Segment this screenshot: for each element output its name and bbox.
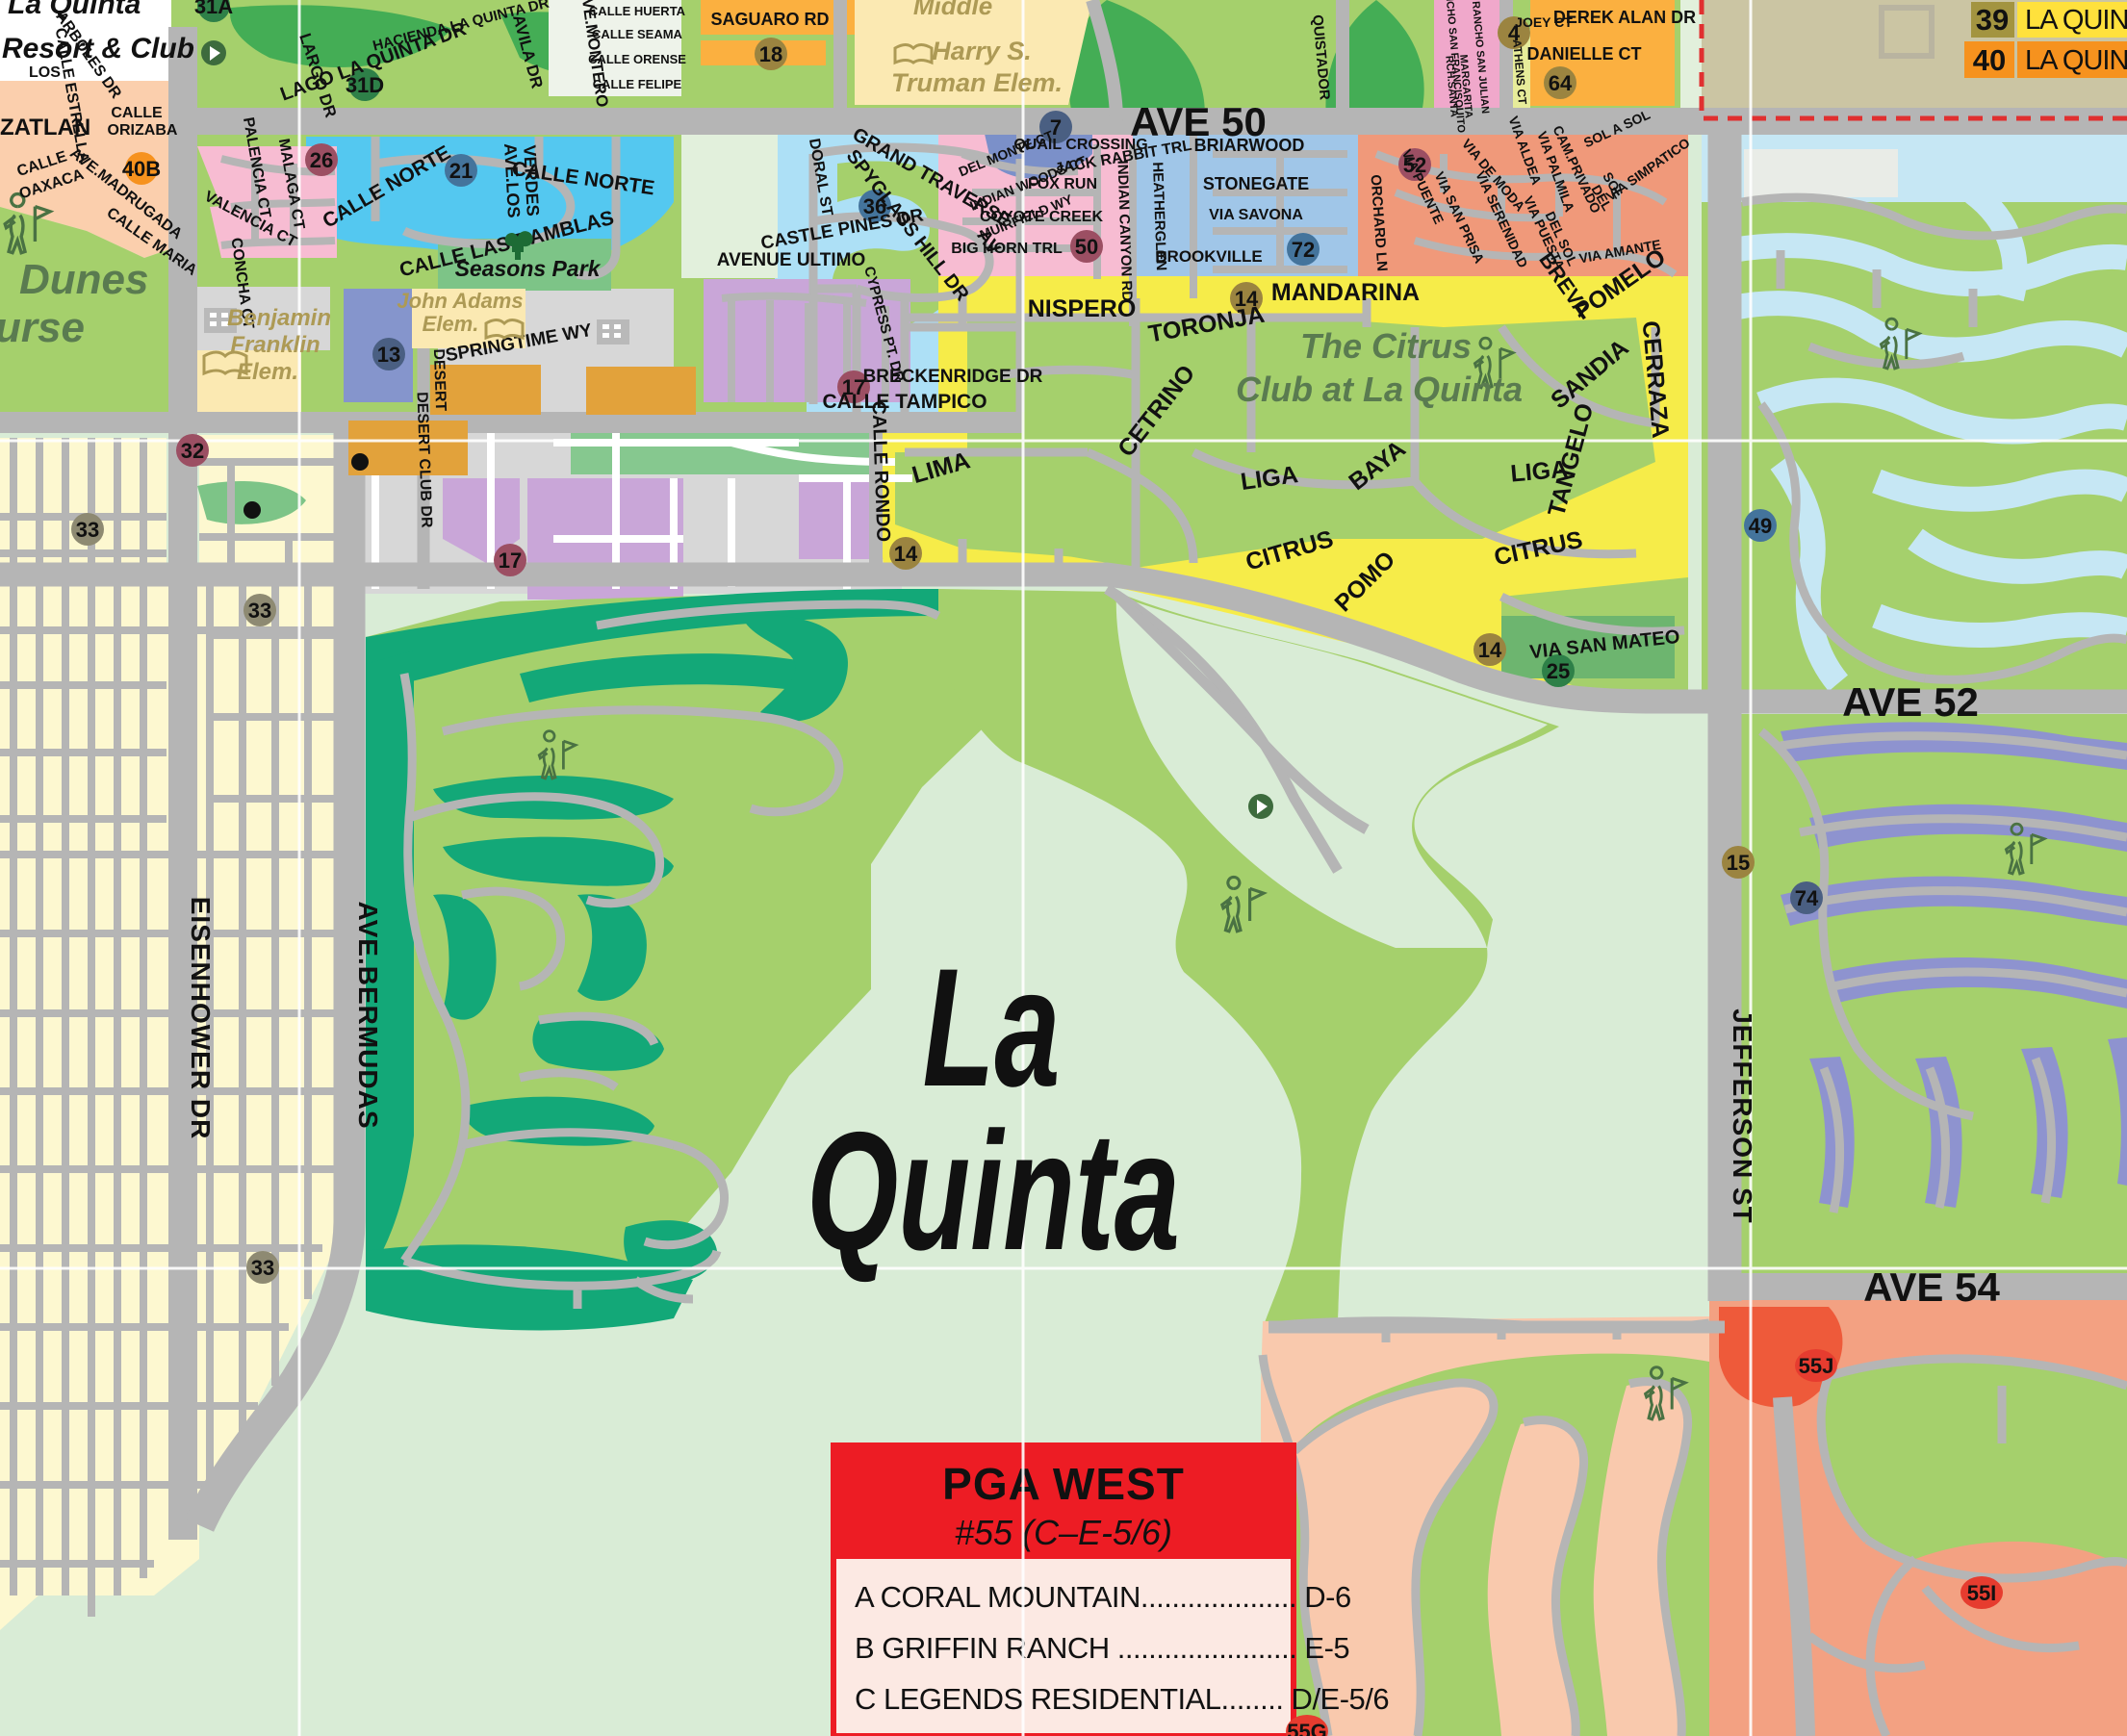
- svg-text:55I: 55I: [1967, 1581, 1997, 1605]
- svg-text:CALLE SEAMA: CALLE SEAMA: [592, 27, 683, 41]
- svg-text:17: 17: [499, 549, 522, 573]
- svg-text:CALLE TAMPICO: CALLE TAMPICO: [822, 391, 987, 413]
- svg-text:CALLE: CALLE: [111, 105, 163, 121]
- svg-text:STONEGATE: STONEGATE: [1203, 174, 1309, 193]
- svg-text:AVE.BERMUDAS: AVE.BERMUDAS: [353, 901, 383, 1129]
- svg-text:La: La: [923, 933, 1061, 1122]
- svg-text:La Quinta: La Quinta: [8, 0, 141, 20]
- svg-text:Benjamin: Benjamin: [227, 305, 331, 331]
- svg-text:49: 49: [1749, 514, 1772, 538]
- svg-text:BIG HORN TRL: BIG HORN TRL: [951, 241, 1063, 257]
- svg-text:DEREK ALAN DR: DEREK ALAN DR: [1553, 8, 1696, 27]
- svg-text:26: 26: [310, 148, 333, 172]
- svg-text:Middle: Middle: [913, 0, 992, 20]
- svg-text:31A: 31A: [194, 0, 233, 18]
- svg-text:39: 39: [1976, 3, 2009, 37]
- svg-text:FOX RUN: FOX RUN: [1028, 176, 1097, 192]
- svg-text:LA QUIN: LA QUIN: [2025, 5, 2127, 36]
- svg-text:LA QUIN: LA QUIN: [2025, 45, 2127, 76]
- svg-text:AVENUE ULTIMO: AVENUE ULTIMO: [717, 250, 865, 270]
- svg-text:Dunes: Dunes: [19, 256, 148, 303]
- svg-text:13: 13: [377, 343, 400, 367]
- svg-text:BRIARWOOD: BRIARWOOD: [1194, 136, 1305, 155]
- svg-text:33: 33: [76, 518, 99, 542]
- svg-text:DANIELLE CT: DANIELLE CT: [1527, 44, 1642, 64]
- svg-text:33: 33: [248, 599, 271, 623]
- svg-text:ORIZABA: ORIZABA: [108, 122, 178, 139]
- svg-text:25: 25: [1547, 659, 1570, 683]
- svg-text:The Citrus: The Citrus: [1300, 326, 1472, 366]
- svg-text:A CORAL MOUNTAIN.............: A CORAL MOUNTAIN.................... D-6: [855, 1580, 1351, 1614]
- svg-text:Quinta: Quinta: [807, 1097, 1180, 1286]
- svg-text:John Adams: John Adams: [397, 289, 523, 313]
- svg-text:NISPERO: NISPERO: [1028, 295, 1137, 322]
- svg-text:EISENHOWER DR: EISENHOWER DR: [186, 897, 216, 1140]
- svg-text:14: 14: [894, 542, 918, 566]
- svg-text:JEFFERSON ST: JEFFERSON ST: [1728, 1008, 1757, 1224]
- svg-text:PGA WEST: PGA WEST: [942, 1459, 1185, 1509]
- svg-text:AVE.LOS: AVE.LOS: [500, 142, 524, 218]
- svg-text:Elem.: Elem.: [423, 312, 479, 336]
- svg-text:CALLE FELIPE: CALLE FELIPE: [593, 77, 682, 91]
- svg-text:64: 64: [1549, 71, 1573, 95]
- svg-text:VIA SAVONA: VIA SAVONA: [1209, 207, 1303, 223]
- svg-text:AVE 54: AVE 54: [1863, 1264, 2000, 1310]
- svg-text:BRECKENRIDGE DR: BRECKENRIDGE DR: [863, 367, 1043, 387]
- svg-text:SAGUARO RD: SAGUARO RD: [710, 10, 829, 29]
- svg-text:MANDARINA: MANDARINA: [1271, 279, 1420, 306]
- svg-text:Club at La Quinta: Club at La Quinta: [1236, 370, 1523, 409]
- svg-text:74: 74: [1795, 886, 1819, 910]
- svg-text:55J: 55J: [1799, 1354, 1834, 1378]
- svg-text:72: 72: [1292, 238, 1315, 262]
- svg-text:#55 (C–E-5/6): #55 (C–E-5/6): [955, 1513, 1172, 1552]
- svg-text:15: 15: [1727, 851, 1750, 875]
- svg-text:40B: 40B: [122, 157, 161, 181]
- svg-text:Harry S.: Harry S.: [932, 37, 1032, 65]
- svg-text:B GRIFFIN RANCH .............: B GRIFFIN RANCH ....................... …: [855, 1631, 1349, 1665]
- svg-text:VERDES: VERDES: [520, 144, 543, 217]
- svg-text:LOS: LOS: [29, 64, 61, 81]
- svg-text:18: 18: [759, 42, 782, 66]
- svg-text:CALLE ORENSE: CALLE ORENSE: [588, 52, 686, 66]
- svg-text:Truman Elem.: Truman Elem.: [891, 68, 1063, 97]
- svg-text:Seasons Park: Seasons Park: [455, 256, 602, 281]
- svg-text:21: 21: [449, 159, 473, 183]
- svg-text:BROOKVILLE: BROOKVILLE: [1155, 247, 1262, 266]
- svg-text:DESERT: DESERT: [430, 348, 448, 412]
- svg-text:AVE 52: AVE 52: [1842, 679, 1979, 725]
- svg-text:urse: urse: [0, 304, 85, 351]
- svg-text:COYOTE CREEK: COYOTE CREEK: [980, 209, 1103, 225]
- svg-text:55G: 55G: [1287, 1720, 1327, 1736]
- svg-text:ZATLAN: ZATLAN: [0, 115, 90, 140]
- svg-text:14: 14: [1478, 638, 1502, 662]
- svg-text:C LEGENDS RESIDENTIAL........: C LEGENDS RESIDENTIAL........ D/E-5/6: [855, 1682, 1389, 1716]
- svg-text:33: 33: [251, 1256, 274, 1280]
- svg-text:LIGA: LIGA: [1509, 455, 1569, 487]
- svg-text:40: 40: [1973, 43, 2006, 77]
- svg-text:CALLE HUERTA: CALLE HUERTA: [589, 4, 686, 18]
- svg-text:50: 50: [1075, 235, 1098, 259]
- svg-text:32: 32: [181, 439, 204, 463]
